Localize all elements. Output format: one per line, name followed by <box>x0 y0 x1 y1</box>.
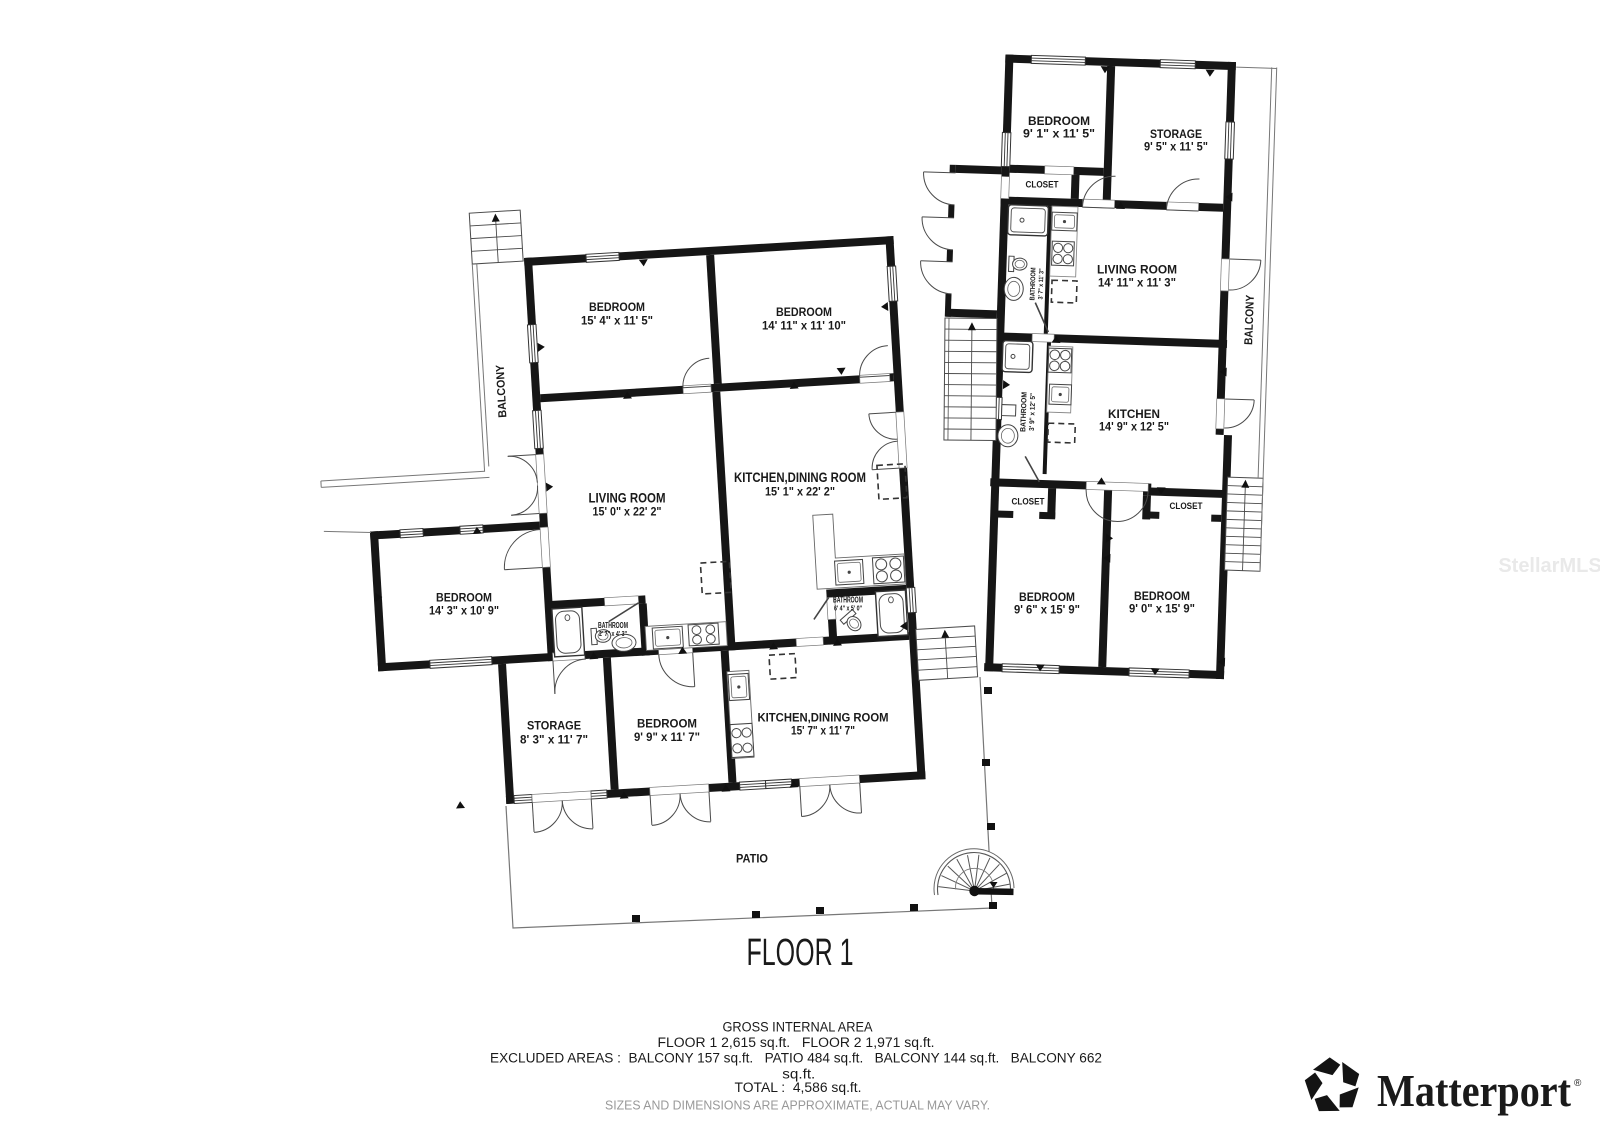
svg-text:3' 7" x 11' 3": 3' 7" x 11' 3" <box>1037 268 1045 299</box>
svg-text:Matterport: Matterport <box>1377 1065 1572 1116</box>
svg-text:CLOSET: CLOSET <box>1012 497 1045 508</box>
svg-text:KITCHEN,DINING ROOM: KITCHEN,DINING ROOM <box>758 711 889 725</box>
svg-text:14' 3" x 10' 9": 14' 3" x 10' 9" <box>429 604 499 618</box>
svg-text:EXCLUDED AREAS : BALCONY 157: EXCLUDED AREAS : BALCONY 157 sq.ft. PATI… <box>490 1051 1102 1066</box>
svg-text:15' 4" x 11' 5": 15' 4" x 11' 5" <box>581 314 653 328</box>
svg-text:SIZES AND DIMENSIONS ARE APPRO: SIZES AND DIMENSIONS ARE APPROXIMATE, AC… <box>605 1098 990 1113</box>
svg-text:PATIO: PATIO <box>736 854 768 866</box>
svg-text:9' 6" x 15' 9": 9' 6" x 15' 9" <box>1014 603 1080 617</box>
svg-text:GROSS INTERNAL AREA: GROSS INTERNAL AREA <box>723 1020 873 1035</box>
svg-text:BALCONY: BALCONY <box>1243 294 1257 345</box>
svg-text:StellarMLS: StellarMLS <box>1498 555 1600 577</box>
svg-text:BATHROOM: BATHROOM <box>1018 392 1028 432</box>
svg-text:LIVING ROOM: LIVING ROOM <box>589 491 666 506</box>
svg-text:CLOSET: CLOSET <box>1170 501 1203 512</box>
svg-text:15' 7" x 11' 7": 15' 7" x 11' 7" <box>791 724 855 738</box>
svg-text:TOTAL : 4,586 sq.ft.: TOTAL : 4,586 sq.ft. <box>735 1080 862 1095</box>
svg-text:BATHROOM: BATHROOM <box>1029 267 1037 300</box>
svg-text:9' 0" x 15' 9": 9' 0" x 15' 9" <box>1129 602 1195 616</box>
svg-text:8' 3" x 11' 7": 8' 3" x 11' 7" <box>520 733 588 747</box>
svg-text:LIVING ROOM: LIVING ROOM <box>1097 263 1177 277</box>
svg-text:6' 4" x 5' 0": 6' 4" x 5' 0" <box>834 604 862 613</box>
svg-text:®: ® <box>1574 1078 1582 1089</box>
svg-text:BEDROOM: BEDROOM <box>589 300 645 314</box>
svg-text:CLOSET: CLOSET <box>1026 180 1059 191</box>
svg-text:2' 7" x 4' 3": 2' 7" x 4' 3" <box>599 629 627 638</box>
svg-text:BEDROOM: BEDROOM <box>436 591 492 605</box>
svg-text:STORAGE: STORAGE <box>527 719 581 733</box>
svg-text:3' 9" x 12' 5": 3' 9" x 12' 5" <box>1029 393 1037 431</box>
svg-text:9' 9" x 11' 7": 9' 9" x 11' 7" <box>634 730 700 744</box>
svg-text:15' 1" x 22' 2": 15' 1" x 22' 2" <box>765 485 835 499</box>
svg-text:KITCHEN,DINING ROOM: KITCHEN,DINING ROOM <box>734 470 866 485</box>
svg-text:14' 11" x 11' 10": 14' 11" x 11' 10" <box>762 319 846 333</box>
svg-text:BEDROOM: BEDROOM <box>637 717 697 731</box>
svg-text:14' 9" x 12' 5": 14' 9" x 12' 5" <box>1099 420 1169 434</box>
svg-text:FLOOR 1: FLOOR 1 <box>747 932 854 974</box>
svg-text:9' 5" x 11' 5": 9' 5" x 11' 5" <box>1144 140 1208 154</box>
svg-text:FLOOR 1 2,615 sq.ft. FLOOR 2: FLOOR 1 2,615 sq.ft. FLOOR 2 1,971 sq.ft… <box>658 1035 935 1050</box>
svg-text:BEDROOM: BEDROOM <box>776 305 832 319</box>
svg-text:15' 0" x 22' 2": 15' 0" x 22' 2" <box>593 505 662 519</box>
svg-text:9' 1" x 11' 5": 9' 1" x 11' 5" <box>1023 127 1095 141</box>
svg-text:14' 11" x 11' 3": 14' 11" x 11' 3" <box>1098 276 1176 290</box>
